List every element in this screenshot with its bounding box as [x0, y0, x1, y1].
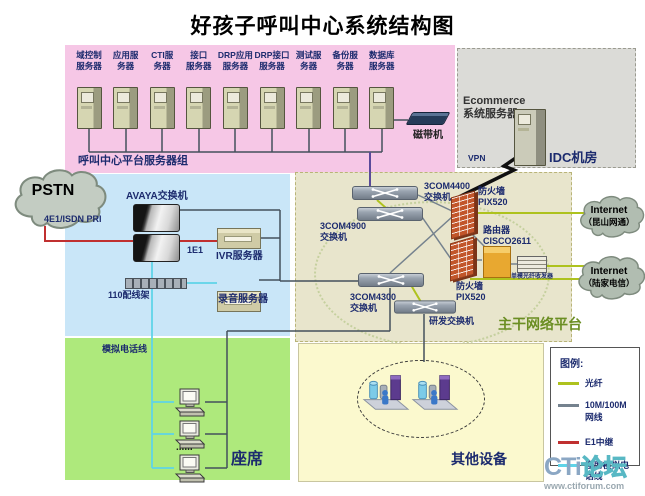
other-devices-label: 其他设备: [451, 451, 507, 468]
idc-room-label: IDC机房: [549, 150, 597, 165]
avaya-switch-icon: [133, 204, 180, 264]
router-label: 路由器 CISCO2611: [483, 225, 531, 246]
dots-label: ......: [176, 442, 193, 454]
watermark: CTi论坛 www.ctiforum.com: [544, 455, 627, 491]
server-column: 数据库服务器: [361, 50, 403, 129]
page-title: 好孩子呼叫中心系统结构图: [191, 14, 455, 38]
e1-label: 1E1: [187, 245, 203, 256]
sw4900-label: 3COM4900 交换机: [320, 221, 366, 242]
internet1-label: Internet （昆山网通）: [575, 205, 643, 228]
avaya-unit-bottom: [133, 234, 180, 262]
internet2-line2: （陆家电信）: [573, 277, 645, 289]
server-tower-icon: [77, 87, 102, 129]
server-tower-icon: [150, 87, 175, 129]
sw4300-label: 3COM4300 交换机: [350, 292, 396, 313]
router-icon: [483, 246, 511, 278]
legend-item-label: 10M/100M网线: [585, 400, 635, 423]
sw4900-line1: 3COM4900: [320, 221, 366, 232]
watermark-brand2: 论坛: [581, 454, 627, 480]
legend-item-label: 光纤: [585, 378, 635, 389]
legend-title: 图例:: [560, 355, 639, 370]
watermark-brand1: CTi: [544, 453, 581, 481]
ecommerce-server-icon: [514, 109, 546, 166]
tape-drive-icon: [406, 112, 451, 125]
legend: 图例: 光纤 10M/100M网线 E1中继 座席模拟电话线: [550, 347, 640, 466]
avaya-unit-top: [133, 204, 180, 232]
pstn-label: PSTN: [22, 182, 84, 200]
firewall-top-icon: [451, 191, 475, 240]
fw1-line2: PIX520: [478, 197, 508, 208]
legend-item-fiber: 光纤: [558, 378, 635, 389]
ivr-label: IVR服务器: [216, 251, 263, 263]
phone-line-label: 模拟电话线: [102, 344, 147, 355]
server-tower-icon: [369, 87, 394, 129]
trunk-label: 4E1/ISDN PRI: [44, 214, 102, 225]
legend-item-lan: 10M/100M网线: [558, 400, 635, 423]
server-tower-icon: [186, 87, 211, 129]
server-tower-icon: [333, 87, 358, 129]
other-devices-ellipse: [357, 360, 485, 438]
server-tower-icon: [296, 87, 321, 129]
recorder-label: 录音服务器: [218, 294, 268, 306]
fw2-line2: PIX520: [456, 292, 486, 303]
lan-line-swatch: [558, 404, 579, 407]
firewall-bottom-label: 防火墙 PIX520: [456, 281, 486, 302]
router-line1: 路由器: [483, 225, 531, 236]
rd-switch-label: 研发交换机: [429, 316, 474, 327]
agents-label: 座席: [231, 451, 263, 470]
ecommerce-label-line1: Ecommerce: [463, 95, 525, 108]
fiber-line-swatch: [558, 382, 579, 385]
server-label: 数据库服务器: [361, 50, 403, 74]
internet2-label: Internet （陆家电信）: [573, 266, 645, 289]
avaya-label: AVAYA交换机: [126, 191, 188, 203]
frame110-icon: [125, 278, 187, 289]
legend-item-e1: E1中继: [558, 437, 635, 448]
server-tower-icon: [260, 87, 285, 129]
server-tower-icon: [223, 87, 248, 129]
other-devices-box: [298, 343, 544, 482]
fw1-line1: 防火墙: [478, 186, 508, 197]
legend-item-label: E1中继: [585, 437, 635, 448]
internet2-line1: Internet: [573, 266, 645, 277]
frame110-label: 110配线架: [108, 290, 150, 301]
fiber-transceiver-label: 单模光纤收发器: [511, 274, 553, 281]
internet1-line1: Internet: [575, 205, 643, 216]
internet1-line2: （昆山网通）: [575, 216, 643, 228]
firewall-bottom-icon: [450, 237, 474, 282]
sw4900-line2: 交换机: [320, 232, 366, 243]
sw4300-line2: 交换机: [350, 303, 396, 314]
firewall-top-label: 防火墙 PIX520: [478, 186, 508, 207]
server-group-label: 呼叫中心平台服务器组: [78, 155, 188, 168]
tape-drive-label: 磁带机: [413, 130, 443, 142]
server-tower-icon: [113, 87, 138, 129]
ivr-server-icon: [217, 228, 261, 249]
sw4300-line1: 3COM4300: [350, 292, 396, 303]
fw2-line1: 防火墙: [456, 281, 486, 292]
vpn-label: VPN: [468, 153, 485, 163]
fiber-transceiver-icon: [517, 256, 547, 273]
e1-line-swatch: [558, 441, 579, 444]
watermark-url: www.ctiforum.com: [544, 482, 627, 491]
backbone-label: 主干网络平台: [498, 316, 582, 333]
sw4400-line1: 3COM4400: [424, 181, 470, 192]
router-line2: CISCO2611: [483, 236, 531, 247]
